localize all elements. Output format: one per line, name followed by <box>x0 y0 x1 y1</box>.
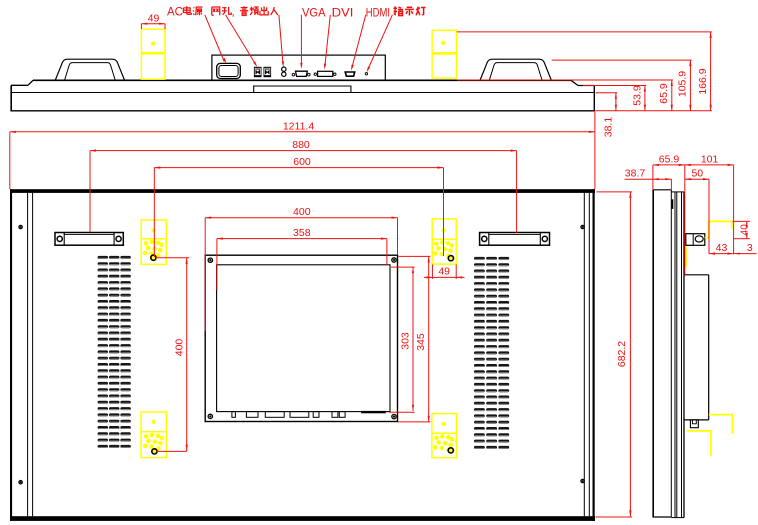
svg-text:101: 101 <box>701 153 719 165</box>
svg-text:43: 43 <box>716 242 728 254</box>
svg-text:880: 880 <box>292 139 310 151</box>
svg-text:400: 400 <box>293 206 311 218</box>
svg-text:53.9: 53.9 <box>632 85 644 106</box>
svg-text:65.9: 65.9 <box>658 83 670 104</box>
svg-text:166.9: 166.9 <box>697 68 709 94</box>
svg-text:345: 345 <box>415 333 427 351</box>
svg-text:40: 40 <box>739 224 750 236</box>
svg-text:600: 600 <box>293 156 311 168</box>
svg-text:50: 50 <box>691 168 703 180</box>
svg-text:3: 3 <box>747 242 753 254</box>
svg-text:AC: AC <box>167 7 183 19</box>
svg-text:49: 49 <box>148 13 160 25</box>
svg-text:38.1: 38.1 <box>603 117 615 138</box>
svg-text:358: 358 <box>293 227 311 239</box>
svg-text:65.9: 65.9 <box>659 153 680 165</box>
svg-text:303: 303 <box>400 332 412 350</box>
svg-text:DVI: DVI <box>332 8 354 20</box>
svg-text:,: , <box>232 7 235 19</box>
svg-text:400: 400 <box>173 339 185 357</box>
svg-text:49: 49 <box>438 266 450 278</box>
svg-text:38.7: 38.7 <box>625 168 646 180</box>
svg-text:105.9: 105.9 <box>677 71 689 97</box>
svg-text:HDMI: HDMI <box>366 8 390 20</box>
svg-text:VGA: VGA <box>302 8 326 20</box>
svg-text:1211.4: 1211.4 <box>283 120 314 132</box>
svg-text:682.2: 682.2 <box>616 341 628 367</box>
